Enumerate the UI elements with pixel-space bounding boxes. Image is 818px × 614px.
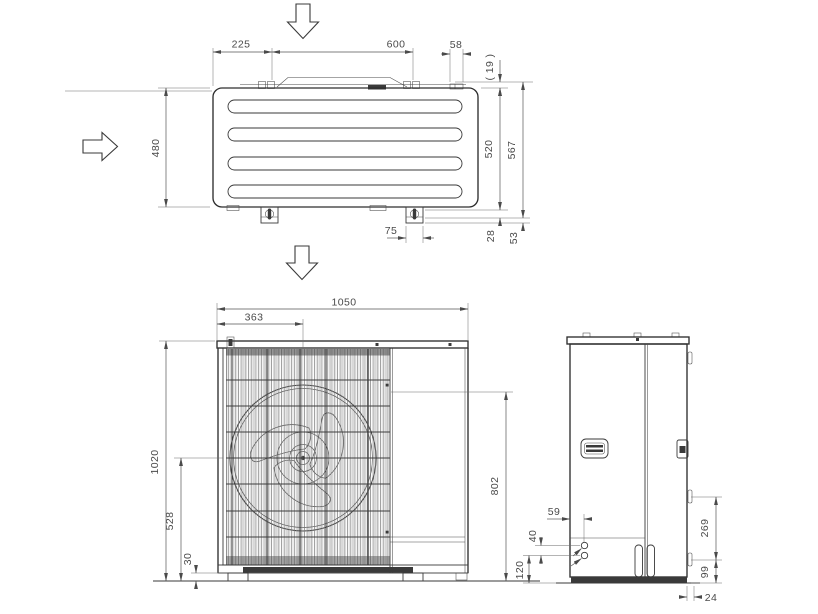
dim-label-1020: 1020 [149,450,161,475]
dim-label-802: 802 [489,477,501,496]
front-view: 1050 363 1020 528 30 802 [149,297,540,590]
dim-label-24: 24 [705,592,717,604]
dim-label-363: 363 [245,312,264,324]
dim-label-99: 99 [699,566,711,578]
dim-label-120: 120 [514,561,526,580]
arrow-right-icon [83,133,118,161]
fan-grille [222,348,393,573]
arrow-down-icon [287,246,318,280]
dim-label-480: 480 [150,139,162,158]
dim-label-269: 269 [699,519,711,538]
dim-label-1050: 1050 [332,297,357,309]
dim-label-59: 59 [548,506,560,518]
outdoor-unit-dimension-drawing: 225 600 58 ( 19 ) 480 520 [0,0,818,614]
top-view: 225 600 58 ( 19 ) 480 520 [65,39,533,245]
technical-drawing-page: 225 600 58 ( 19 ) 480 520 [0,0,818,614]
dim-label-225: 225 [232,39,251,51]
dim-label-30: 30 [182,553,194,565]
dim-label-75: 75 [385,225,397,237]
dim-label-600: 600 [387,39,406,51]
top-view-body [65,78,478,224]
dim-label-40: 40 [527,530,539,542]
arrow-down-icon [288,4,319,39]
side-view: 59 40 120 269 99 24 [514,333,722,604]
dim-label-53: 53 [508,232,520,244]
front-view-body [153,337,540,581]
dim-label-528: 528 [164,512,176,531]
dim-label-520: 520 [483,140,495,159]
airflow-arrows [83,4,319,280]
dim-label-28: 28 [485,230,497,242]
dim-label-19: ( 19 ) [484,54,496,81]
dim-label-567: 567 [506,141,518,160]
dim-label-58: 58 [450,39,462,51]
side-view-dimensions: 59 40 120 269 99 24 [514,497,722,604]
